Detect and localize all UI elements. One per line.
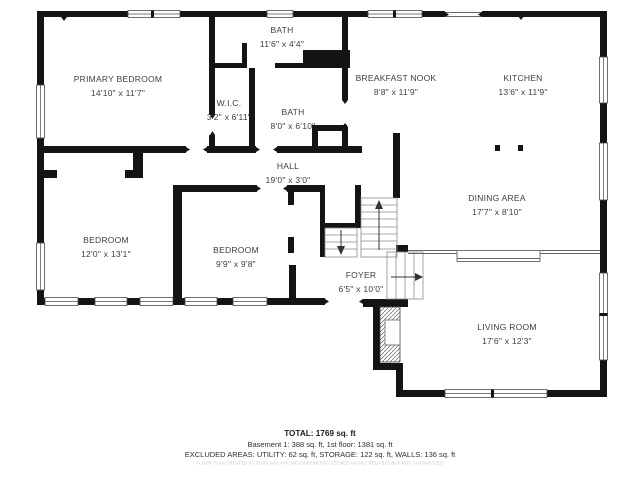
stairs-up-arrow [375, 200, 383, 250]
room-label-wic: W.I.C. [217, 98, 242, 108]
stairs-entry [387, 252, 423, 299]
room-dims-living-room: 17'6" x 12'3" [482, 336, 532, 346]
stairs-down-arrow [337, 230, 345, 255]
room-label-bath-hall: BATH [281, 107, 304, 117]
room-label-kitchen: KITCHEN [503, 73, 542, 83]
room-dims-bath-top: 11'6" x 4'4" [260, 39, 304, 49]
summary: TOTAL: 1769 sq. ft Basement 1: 388 sq. f… [185, 429, 456, 466]
summary-total: TOTAL: 1769 sq. ft [284, 429, 356, 438]
room-label-dining-area: DINING AREA [468, 193, 526, 203]
room-label-foyer: FOYER [346, 270, 377, 280]
room-dims-dining-area: 17'7" x 8'10" [472, 207, 522, 217]
room-label-hall: HALL [277, 161, 299, 171]
room-dims-bedroom-left: 12'0" x 13'1" [81, 249, 131, 259]
summary-disclaimer: FLOOR PLAN CREATED BY CUBICASA APP. MEAS… [196, 461, 443, 466]
room-label-primary-bedroom: PRIMARY BEDROOM [74, 74, 162, 84]
door-markers [61, 12, 524, 304]
room-label-breakfast-nook: BREAKFAST NOOK [356, 73, 437, 83]
summary-floors: Basement 1: 388 sq. ft, 1st floor: 1381 … [247, 440, 393, 449]
room-dims-breakfast-nook: 8'8" x 11'9" [374, 87, 418, 97]
room-dims-hall: 19'0" x 3'0" [266, 175, 311, 185]
fireplace [380, 307, 400, 362]
room-dims-foyer: 6'5" x 10'0" [339, 284, 384, 294]
room-label-living-room: LIVING ROOM [477, 322, 536, 332]
room-label-bedroom-center: BEDROOM [213, 245, 259, 255]
firebox [385, 320, 400, 345]
dining-living-opening [408, 251, 600, 262]
room-label-bath-top: BATH [270, 25, 293, 35]
room-label-bedroom-left: BEDROOM [83, 235, 129, 245]
floor-plan-drawing: PRIMARY BEDROOM 14'10" x 11'7" BATH 11'6… [0, 0, 640, 480]
summary-excluded: EXCLUDED AREAS: UTILITY: 62 sq. ft, STOR… [185, 450, 456, 459]
room-dims-bath-hall: 8'0" x 6'10" [271, 121, 316, 131]
room-dims-wic: 3'2" x 6'11" [207, 112, 251, 122]
room-dims-primary-bedroom: 14'10" x 11'7" [91, 88, 145, 98]
floor-plan-page: PRIMARY BEDROOM 14'10" x 11'7" BATH 11'6… [0, 0, 640, 480]
room-dims-bedroom-center: 9'9" x 9'8" [216, 259, 256, 269]
room-dims-kitchen: 13'6" x 11'9" [498, 87, 547, 97]
